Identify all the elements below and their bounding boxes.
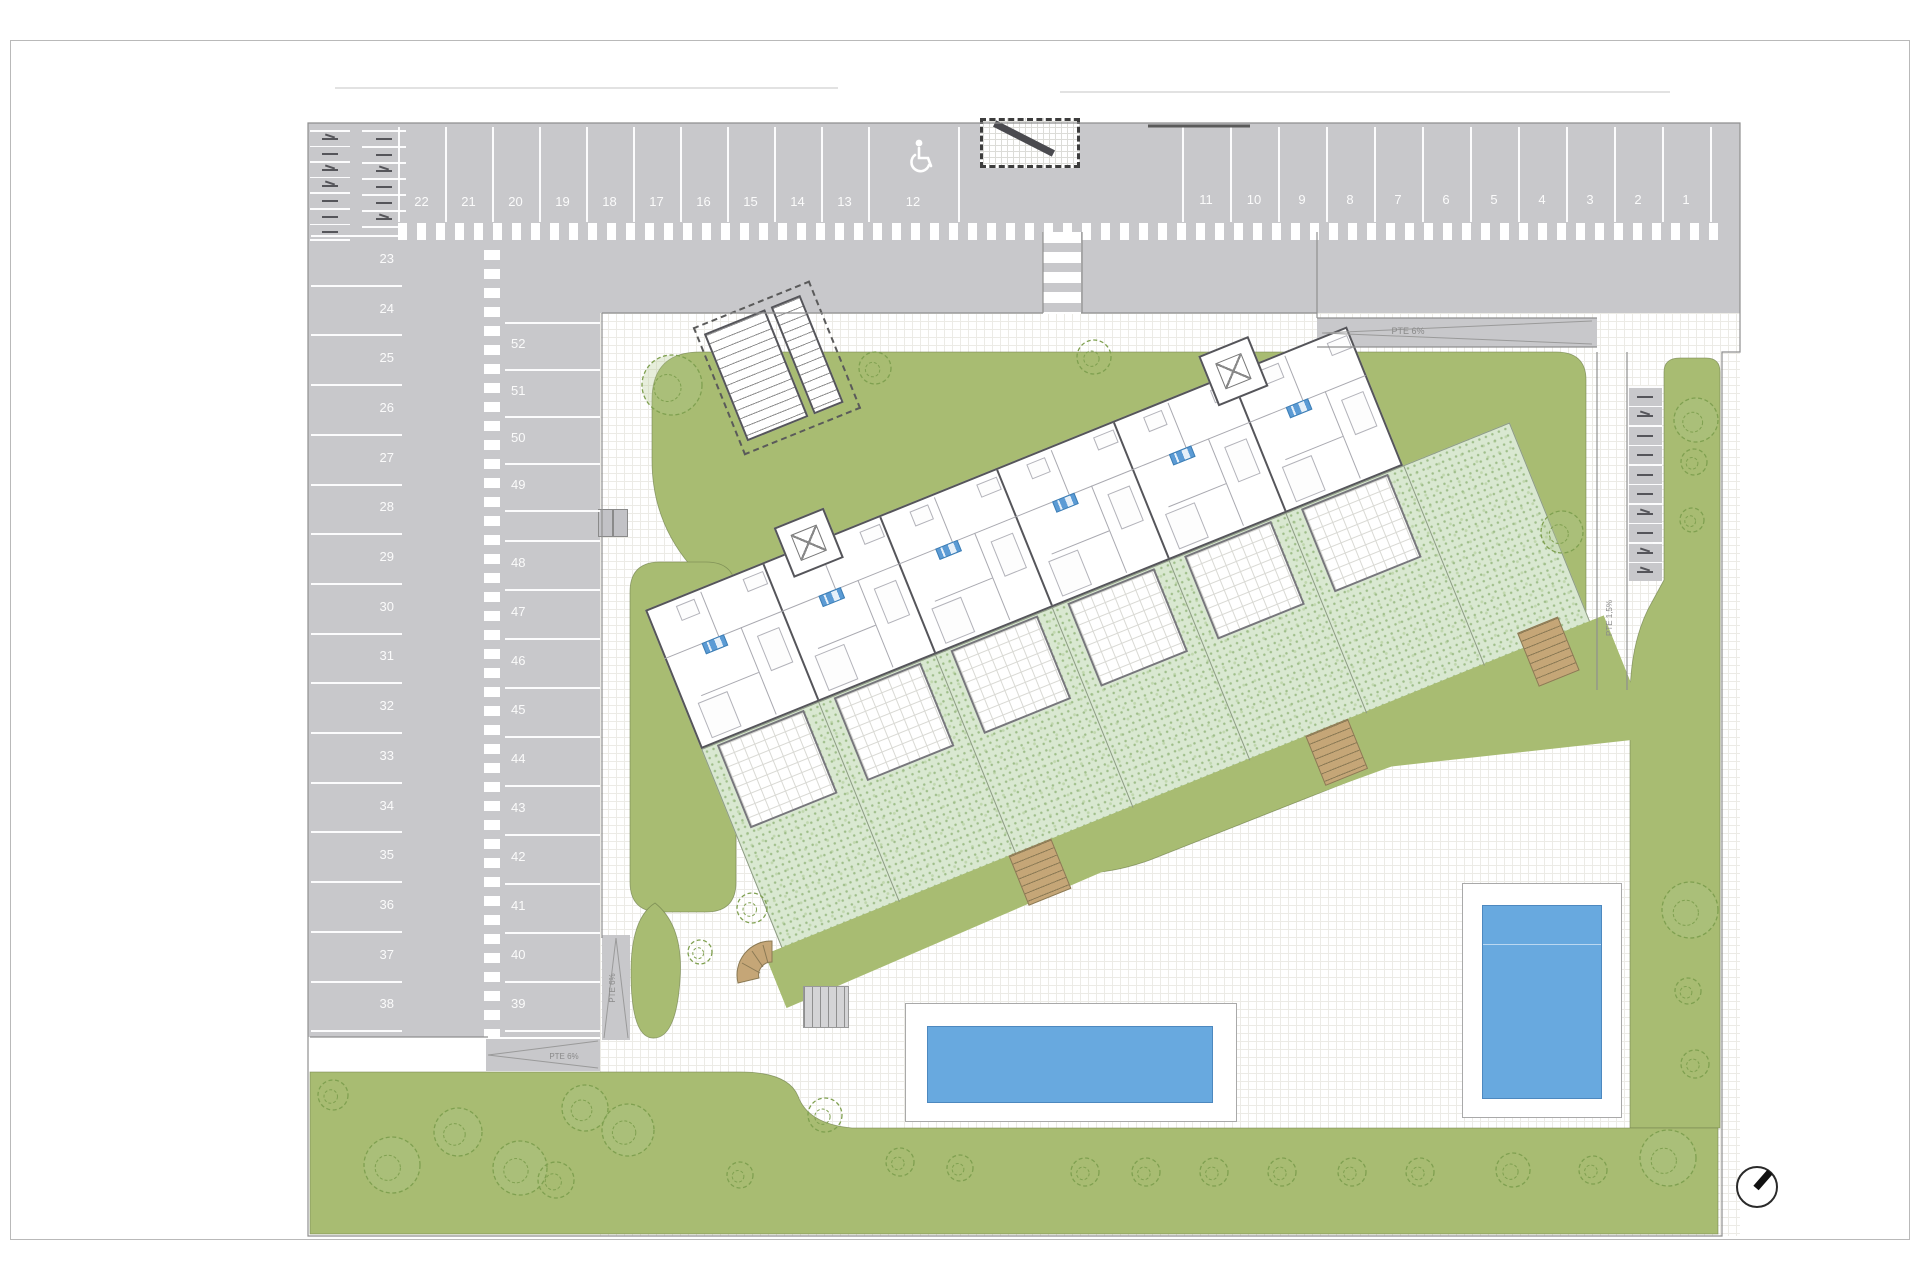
tree-icon	[1640, 1130, 1696, 1186]
tree-icon	[1132, 1158, 1160, 1186]
tree-icon	[562, 1085, 608, 1131]
tree-icon	[318, 1080, 348, 1110]
tree-icon	[865, 362, 879, 376]
tree-icon	[892, 1157, 905, 1170]
tree-icon	[886, 1148, 914, 1176]
tree-icon	[815, 1109, 830, 1124]
tree-icon	[859, 352, 891, 384]
tree-icon	[1077, 340, 1111, 374]
tree-icon	[642, 355, 702, 415]
tree-icon	[1071, 1158, 1099, 1186]
tree-icon	[1681, 1050, 1709, 1078]
tree-icon	[1084, 351, 1099, 366]
ramp-hatch	[488, 321, 1592, 1068]
tree-icon	[1406, 1158, 1434, 1186]
tree-icon	[1268, 1158, 1296, 1186]
tree-icon	[1200, 1158, 1228, 1186]
tree-icon	[952, 1163, 964, 1175]
setback-line	[335, 88, 1670, 92]
tree-icon	[1686, 457, 1698, 469]
tree-icon	[1685, 516, 1696, 527]
tree-icon	[1585, 1165, 1598, 1178]
tree-icon	[1206, 1167, 1219, 1180]
tree-icon	[434, 1108, 482, 1156]
tree-icon	[737, 893, 767, 923]
tree-icon	[947, 1155, 973, 1181]
tree-icon	[1681, 449, 1707, 475]
tree-icon	[324, 1090, 338, 1104]
tree-icon	[1338, 1158, 1366, 1186]
trees	[318, 340, 1718, 1198]
walkway-slope-label: PTE 1,5%	[1605, 600, 1614, 636]
tree-icon	[1503, 1164, 1518, 1179]
ramp-slope-label: PTE 6%	[1391, 326, 1424, 336]
tree-icon	[1687, 1059, 1700, 1072]
tree-icon	[1662, 882, 1718, 938]
north-arrow-icon	[1737, 1167, 1777, 1207]
ramp-slope-label: PTE 6%	[549, 1052, 578, 1061]
tree-icon	[1680, 986, 1692, 998]
tree-icon	[1138, 1167, 1151, 1180]
tree-icon	[808, 1098, 842, 1132]
tree-icon	[545, 1174, 561, 1190]
tree-icon	[1675, 978, 1701, 1004]
tree-icon	[1579, 1156, 1607, 1184]
tree-icon	[1274, 1167, 1287, 1180]
tree-icon	[364, 1137, 420, 1193]
tree-icon	[1674, 398, 1718, 442]
ramp-slope-label: PTE 6%	[608, 973, 617, 1002]
tree-icon	[688, 940, 712, 964]
tree-icon	[1077, 1167, 1090, 1180]
plot-boundary	[308, 123, 1740, 1236]
tree-icon	[1680, 508, 1704, 532]
spiral-stair	[737, 941, 772, 983]
tree-icon	[693, 948, 704, 959]
tree-icon	[727, 1162, 753, 1188]
tree-icon	[602, 1104, 654, 1156]
tree-icon	[1412, 1167, 1425, 1180]
tree-icon	[732, 1170, 744, 1182]
handicap-icon	[911, 140, 931, 172]
site-plan: 2221201918171615141312111098765432123242…	[0, 0, 1920, 1280]
tree-icon	[1541, 511, 1583, 553]
tree-icon	[743, 903, 757, 917]
tree-icon	[1344, 1167, 1357, 1180]
tree-icon	[1496, 1153, 1530, 1187]
plan-overlay: PTE 6% PTE 6% PTE 6% PTE 1,5%	[0, 0, 1920, 1280]
